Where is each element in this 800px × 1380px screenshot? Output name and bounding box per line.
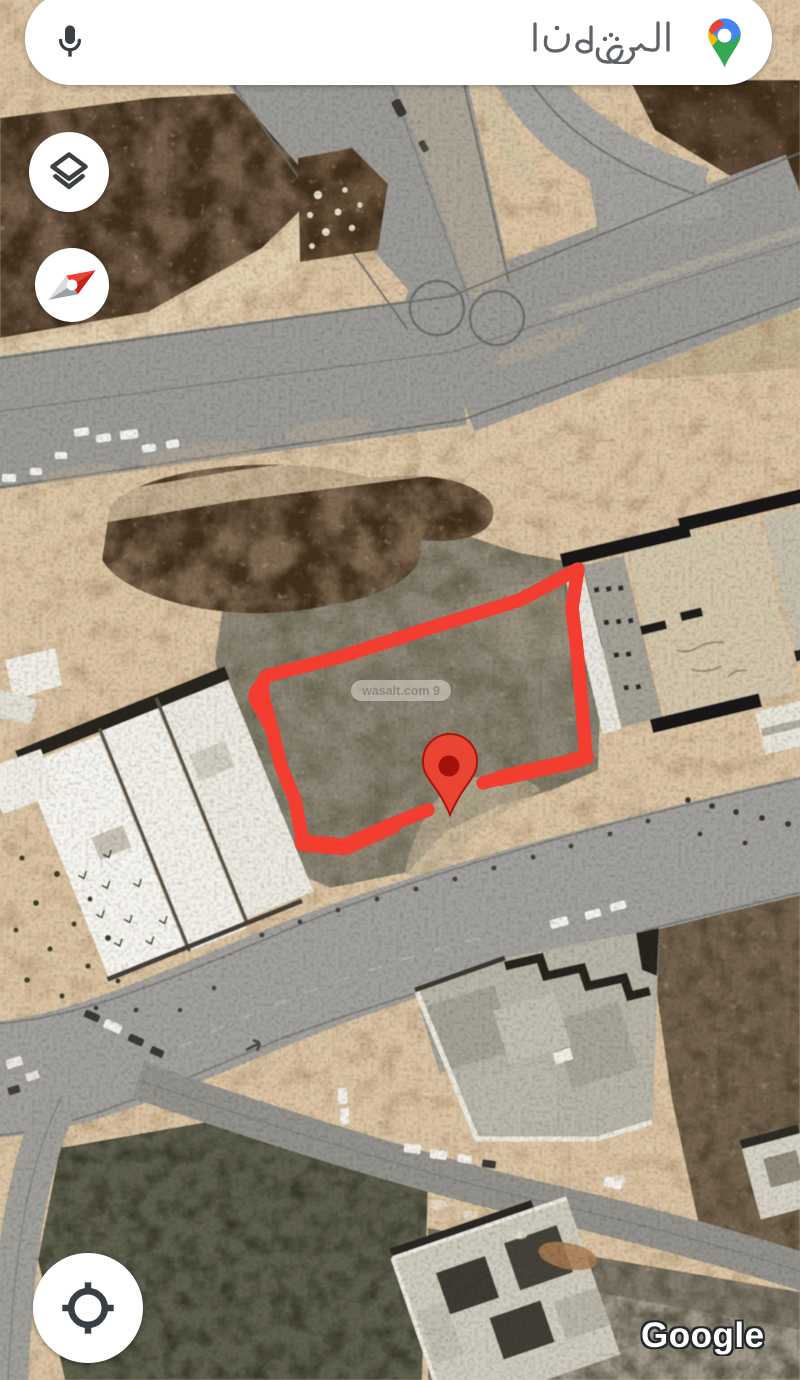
svg-text:wasalt.com 9: wasalt.com 9 — [361, 684, 440, 698]
